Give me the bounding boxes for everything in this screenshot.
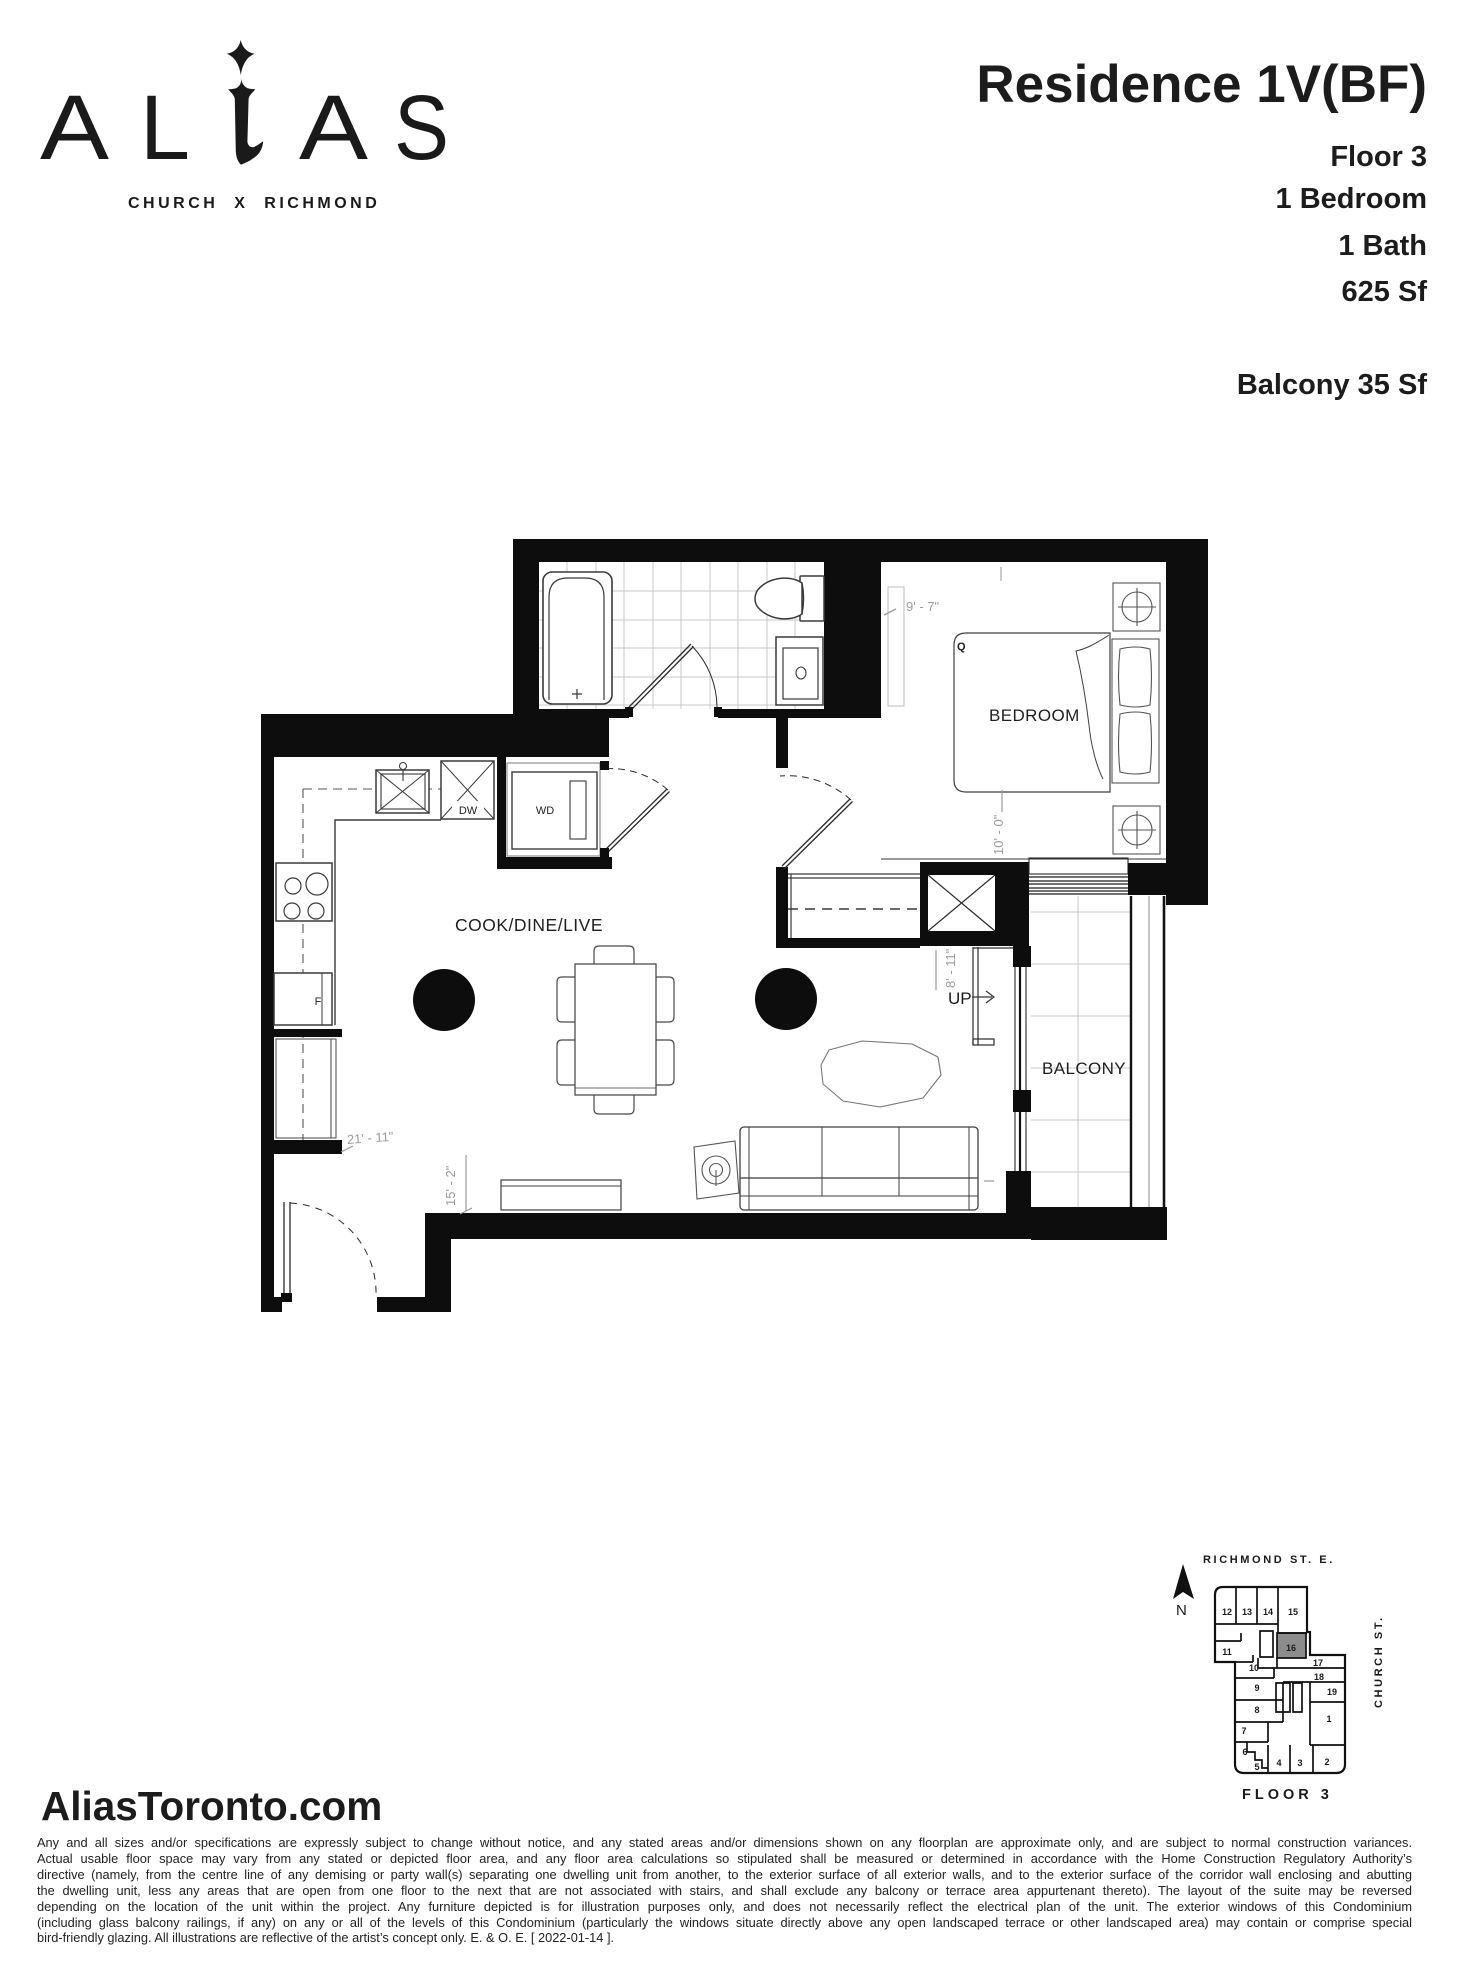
svg-text:14: 14 <box>1263 1607 1273 1617</box>
svg-text:7: 7 <box>1241 1726 1246 1736</box>
svg-text:9' - 7": 9' - 7" <box>906 599 939 614</box>
svg-text:10' - 0": 10' - 0" <box>991 814 1006 855</box>
svg-text:3: 3 <box>1297 1758 1302 1768</box>
svg-text:BEDROOM: BEDROOM <box>989 706 1080 725</box>
svg-text:11: 11 <box>1222 1647 1232 1657</box>
svg-text:DW: DW <box>459 805 478 817</box>
svg-text:BALCONY: BALCONY <box>1042 1059 1126 1078</box>
svg-text:9: 9 <box>1254 1683 1259 1693</box>
svg-text:18: 18 <box>1314 1672 1324 1682</box>
svg-text:17: 17 <box>1313 1658 1323 1668</box>
svg-text:F: F <box>315 996 322 1008</box>
svg-text:UP: UP <box>948 989 972 1008</box>
svg-text:CHURCH ST.: CHURCH ST. <box>1373 1615 1385 1708</box>
svg-text:6: 6 <box>1242 1747 1247 1757</box>
svg-text:15: 15 <box>1288 1607 1298 1617</box>
svg-text:13: 13 <box>1242 1607 1252 1617</box>
svg-text:12: 12 <box>1222 1607 1232 1617</box>
svg-text:WD: WD <box>536 805 554 817</box>
svg-text:2: 2 <box>1324 1757 1329 1767</box>
svg-text:4: 4 <box>1276 1758 1281 1768</box>
svg-text:16: 16 <box>1286 1643 1296 1653</box>
svg-text:COOK/DINE/LIVE: COOK/DINE/LIVE <box>455 915 603 935</box>
svg-text:FLOOR 3: FLOOR 3 <box>1242 1787 1333 1803</box>
svg-text:1: 1 <box>1326 1714 1331 1724</box>
svg-text:8' - 11": 8' - 11" <box>943 948 958 988</box>
svg-text:Q: Q <box>957 641 966 653</box>
svg-text:10: 10 <box>1249 1663 1259 1673</box>
svg-text:N: N <box>1176 1602 1187 1619</box>
svg-text:5: 5 <box>1254 1762 1259 1772</box>
svg-text:RICHMOND ST. E.: RICHMOND ST. E. <box>1203 1554 1335 1566</box>
svg-text:19: 19 <box>1327 1687 1337 1697</box>
svg-text:8: 8 <box>1254 1705 1259 1715</box>
svg-text:15' - 2": 15' - 2" <box>443 1165 458 1206</box>
svg-text:21' - 11": 21' - 11" <box>346 1129 394 1147</box>
